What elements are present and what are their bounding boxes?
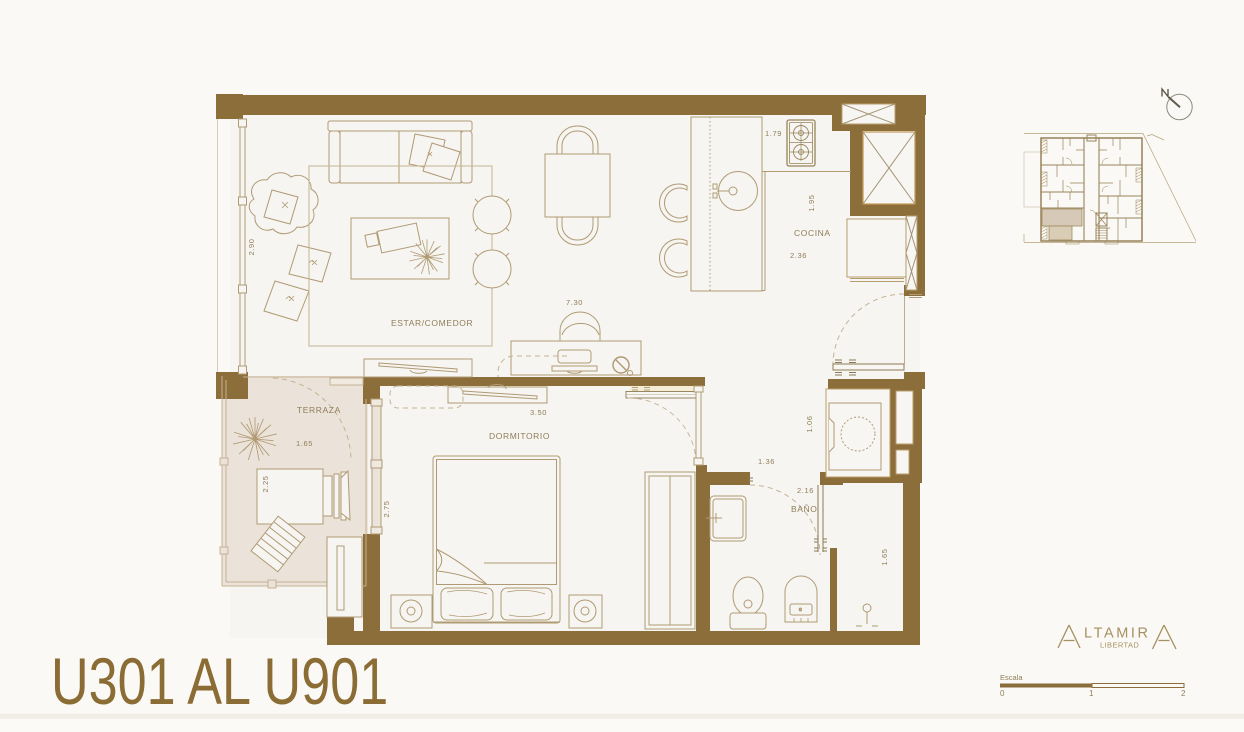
svg-text:1.36: 1.36 [758, 457, 775, 466]
svg-text:7.30: 7.30 [566, 298, 583, 307]
svg-text:2.90: 2.90 [247, 239, 256, 256]
svg-text:LIBERTAD: LIBERTAD [1100, 641, 1139, 650]
svg-text:1.06: 1.06 [805, 416, 814, 433]
svg-text:1.65: 1.65 [296, 439, 313, 448]
svg-text:2.16: 2.16 [797, 486, 814, 495]
svg-text:1.95: 1.95 [807, 195, 816, 212]
svg-text:3.50: 3.50 [530, 408, 547, 417]
svg-text:1.65: 1.65 [880, 549, 889, 566]
svg-text:ESTAR/COMEDOR: ESTAR/COMEDOR [391, 318, 473, 328]
svg-text:U301 AL U901: U301 AL U901 [51, 644, 388, 718]
svg-text:2.75: 2.75 [382, 501, 391, 518]
svg-text:TERRAZA: TERRAZA [297, 405, 341, 415]
svg-text:BAÑO: BAÑO [791, 504, 818, 514]
svg-text:COCINA: COCINA [794, 228, 831, 238]
svg-text:DORMITORIO: DORMITORIO [489, 431, 550, 441]
svg-text:2.25: 2.25 [261, 476, 270, 493]
svg-text:Escala: Escala [1000, 673, 1023, 682]
svg-text:0: 0 [1000, 689, 1005, 698]
svg-text:2: 2 [1181, 689, 1186, 698]
svg-text:o: o [799, 607, 802, 613]
svg-text:2.36: 2.36 [790, 251, 807, 260]
svg-text:1.79: 1.79 [765, 129, 782, 138]
svg-text:1: 1 [1089, 689, 1094, 698]
svg-text:LTAMIR: LTAMIR [1084, 626, 1151, 642]
